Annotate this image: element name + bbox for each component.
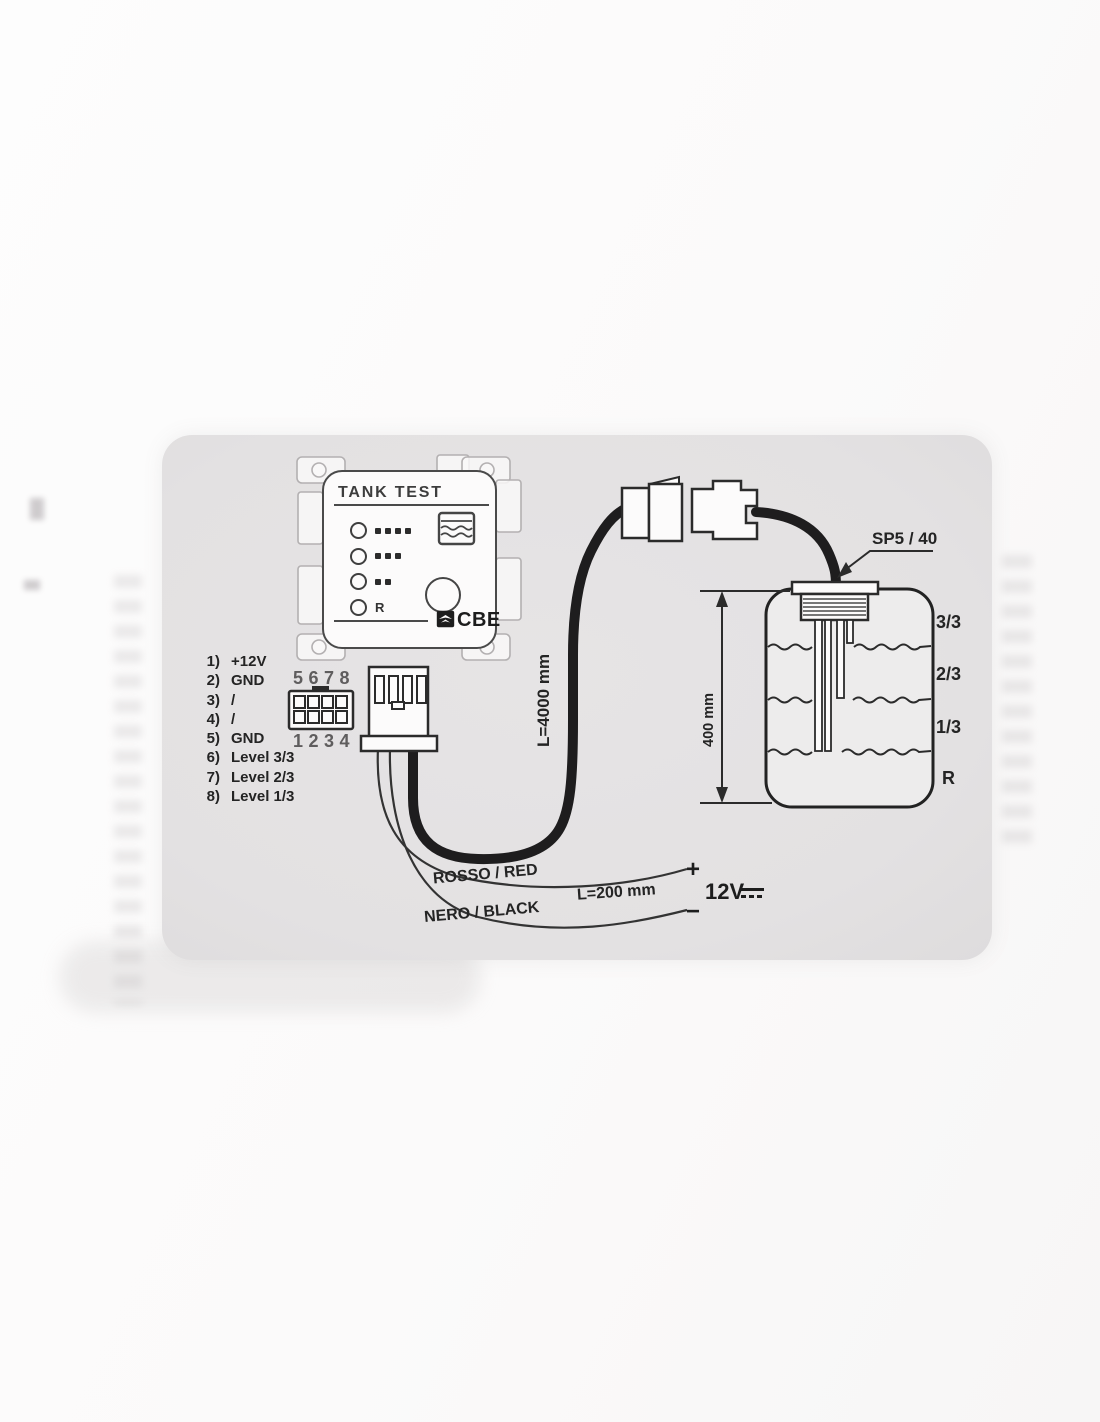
led-indicator <box>350 599 367 616</box>
dc-symbol-icon <box>741 888 764 891</box>
connector-front-view <box>289 686 353 729</box>
pin-row: 5)GND <box>196 729 294 748</box>
voltage-label: 12V <box>705 879 744 905</box>
led-indicator <box>350 522 367 539</box>
led-dots-4 <box>375 528 411 534</box>
probe-cable <box>756 512 836 586</box>
led-indicator-column: R <box>350 518 411 620</box>
level-label-2-3: 2/3 <box>936 664 961 685</box>
probe-model-label: SP5 / 40 <box>872 529 937 549</box>
pin-list: 1)+12V 2)GND 3)/ 4)/ 5)GND 6)Level 3/3 7… <box>196 652 294 806</box>
panel-rear-connector <box>361 667 437 751</box>
manual-page-photo: { "diagram": { "panel": { "title": "TANK… <box>0 0 1100 1422</box>
water-tank-icon <box>437 511 477 549</box>
title-underline <box>334 504 489 506</box>
led-row-reserve: R <box>350 595 411 621</box>
screw-hole-icon <box>312 463 326 477</box>
led-row-two-thirds <box>350 544 411 570</box>
tank-height-label: 400 mm <box>701 693 717 747</box>
cable-length-label: L=4000 mm <box>534 654 554 747</box>
plus-sign: + <box>686 856 700 884</box>
cable-connector-male <box>692 481 757 539</box>
pin-row: 2)GND <box>196 671 294 690</box>
level-label-reserve: R <box>942 768 955 789</box>
led-dots-3 <box>375 553 401 559</box>
probe-leader-line <box>837 551 933 578</box>
level-label-1-3: 1/3 <box>936 717 961 738</box>
led-row-one-third <box>350 569 411 595</box>
connector-bottom-row-numbers: 1234 <box>293 731 355 752</box>
led-dots-2 <box>375 579 391 585</box>
pin-row: 8)Level 1/3 <box>196 787 294 806</box>
led-indicator <box>350 573 367 590</box>
brand-label: CBE <box>457 609 501 632</box>
level-label-3-3: 3/3 <box>936 612 961 633</box>
screw-hole-icon <box>312 640 326 654</box>
connector-top-row-numbers: 5678 <box>293 668 355 689</box>
pin-row: 1)+12V <box>196 652 294 671</box>
minus-sign: − <box>686 898 700 926</box>
pin-row: 4)/ <box>196 710 294 729</box>
pin-row: 7)Level 2/3 <box>196 768 294 787</box>
cable-connector-female <box>622 477 682 541</box>
cbe-logo-icon <box>436 610 455 628</box>
footer-line <box>334 620 428 622</box>
led-row-full <box>350 518 411 544</box>
panel-title: TANK TEST <box>338 484 443 502</box>
dc-symbol-icon <box>741 895 764 898</box>
led-reserve-label: R <box>375 600 384 615</box>
pin-row: 3)/ <box>196 691 294 710</box>
test-button <box>425 577 461 613</box>
pin-row: 6)Level 3/3 <box>196 748 294 767</box>
led-indicator <box>350 548 367 565</box>
